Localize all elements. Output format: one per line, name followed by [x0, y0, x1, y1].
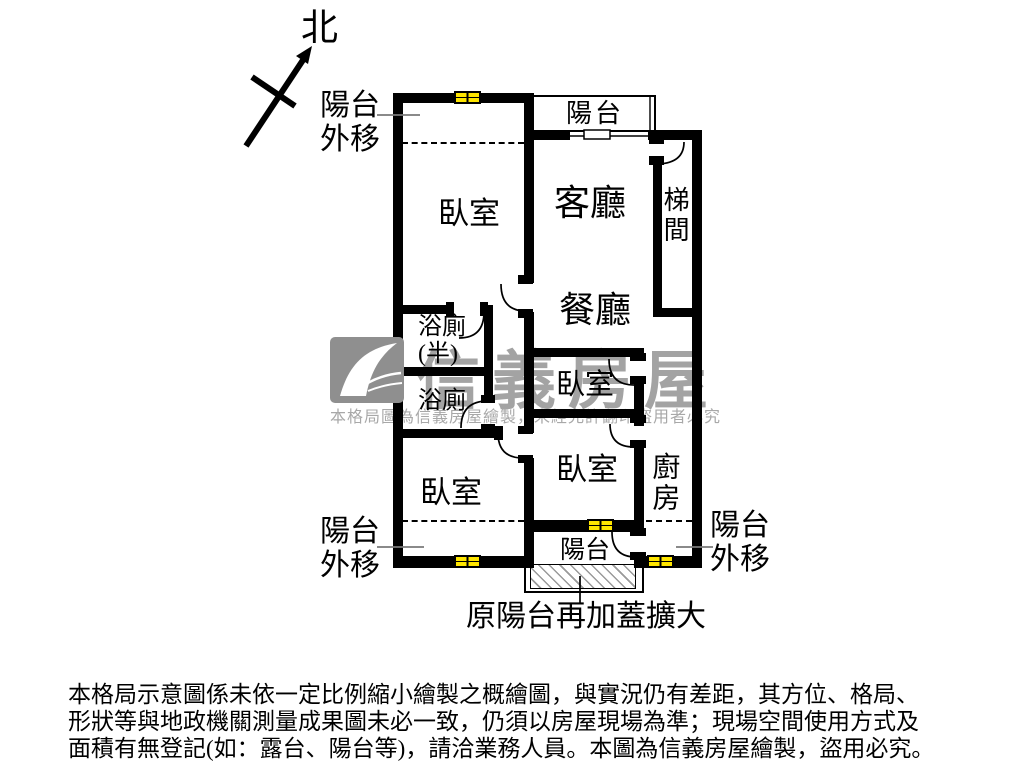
door-arc — [501, 284, 526, 311]
room-label-bedroom-top: 臥室 — [438, 197, 500, 232]
door-arc — [610, 424, 634, 447]
disclaimer-line-3: 面積有無登記(如：露台、陽台等)，請洽業務人員。本圖為信義房屋繪製，盜用必究。 — [68, 735, 934, 762]
annotation-balcony-out-bottom-right: 陽台 外移 — [710, 509, 770, 576]
door-arc — [498, 433, 523, 458]
disclaimer-line-2: 形狀等與地政機關測量成果圖未必一致，仍須以房屋現場為準；現場空間使用方式及 — [68, 708, 919, 735]
room-label-living: 客廳 — [554, 183, 626, 223]
annotation-balcony-out-top-left: 陽台 外移 — [320, 89, 380, 156]
plan-linework — [0, 0, 1024, 768]
north-label: 北 — [301, 8, 338, 49]
room-label-bedroom-lower: 臥室 — [556, 453, 618, 488]
door-arc — [612, 532, 636, 557]
room-label-bedroom-bottom-left: 臥室 — [420, 476, 482, 511]
room-label-dining: 餐廳 — [559, 290, 631, 330]
north-arrow-icon — [246, 46, 312, 146]
disclaimer-line-1: 本格局示意圖係未依一定比例縮小繪製之概繪圖，與實況仍有差距，其方位、格局、 — [68, 681, 919, 708]
sinyi-logo-icon — [330, 337, 404, 403]
room-label-bath-half: 浴廁 (半) — [418, 314, 466, 368]
room-label-bath: 浴廁 — [418, 388, 466, 415]
room-label-stairwell: 梯間 — [660, 186, 689, 246]
door-arc — [658, 142, 684, 164]
room-label-balcony-bottom: 陽台 — [560, 537, 610, 565]
room-label-balcony-top: 陽台 — [566, 99, 624, 128]
annotation-balcony-expanded: 原陽台再加蓋擴大 — [466, 600, 706, 634]
annotation-balcony-out-bottom-left: 陽台 外移 — [320, 515, 380, 582]
floor-plan-canvas: 信義房屋 本格局圖為信義房屋繪製，未經允許翻印盜用者必究 — [0, 0, 1024, 768]
room-label-bedroom-mid: 臥室 — [556, 369, 614, 401]
room-label-kitchen: 廚房 — [648, 452, 679, 514]
